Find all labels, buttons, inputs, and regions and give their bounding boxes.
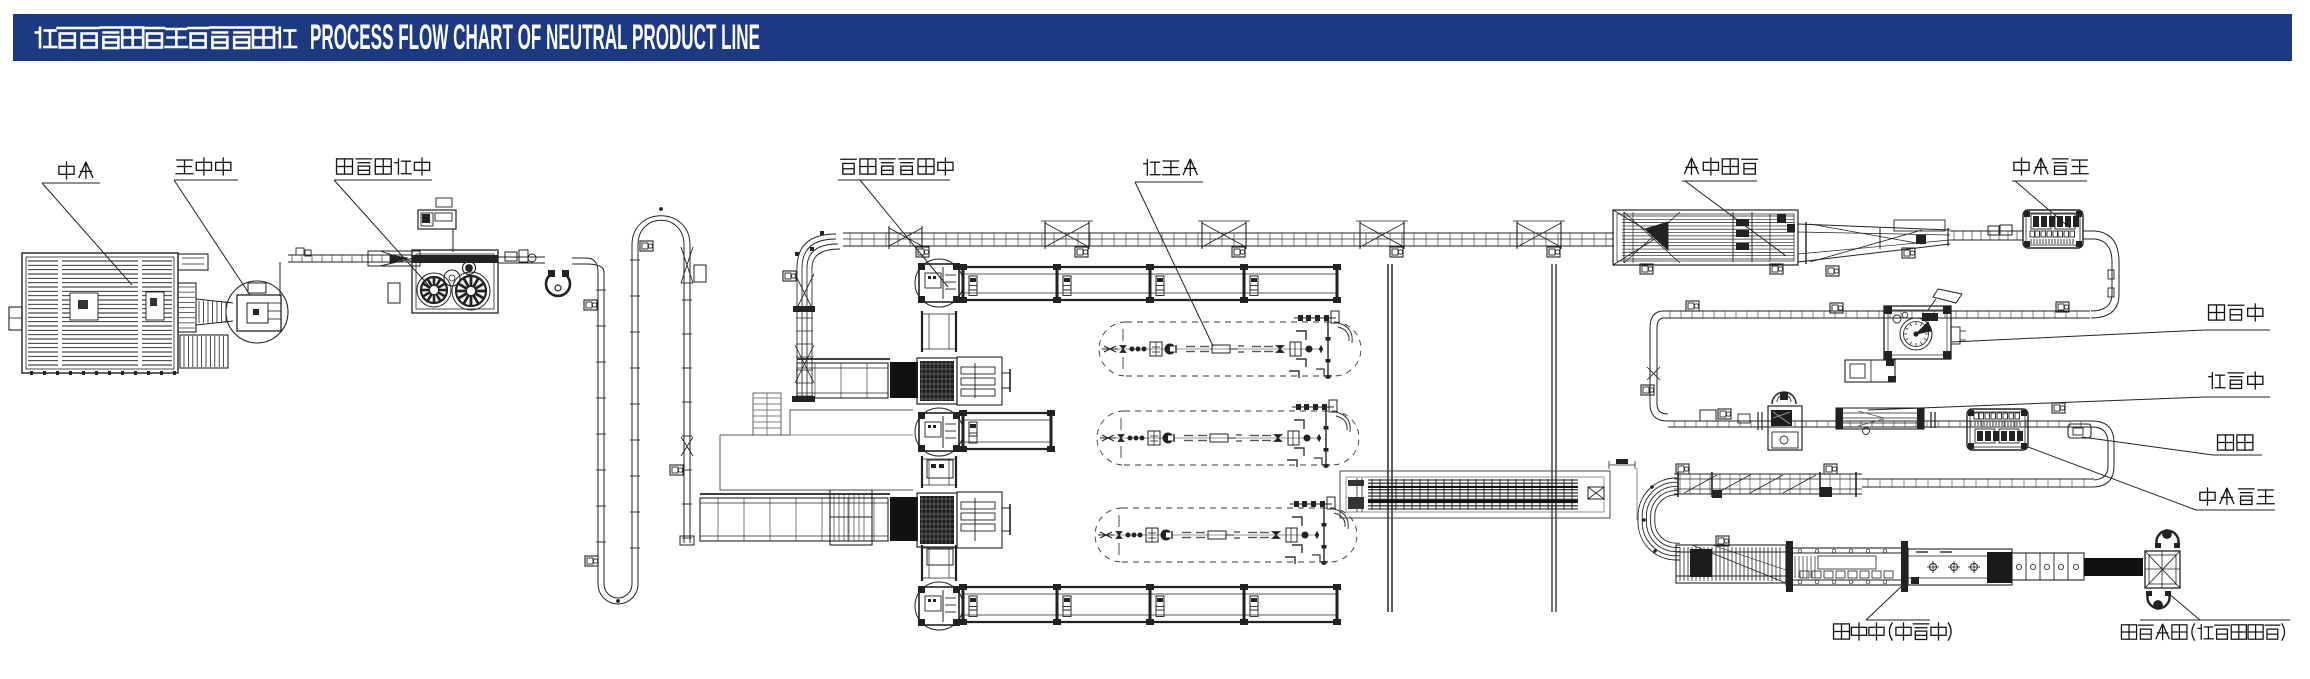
svg-text:PROCESS FLOW CHART OF NEUTRAL: PROCESS FLOW CHART OF NEUTRAL PRODUCT LI… [310,18,760,57]
